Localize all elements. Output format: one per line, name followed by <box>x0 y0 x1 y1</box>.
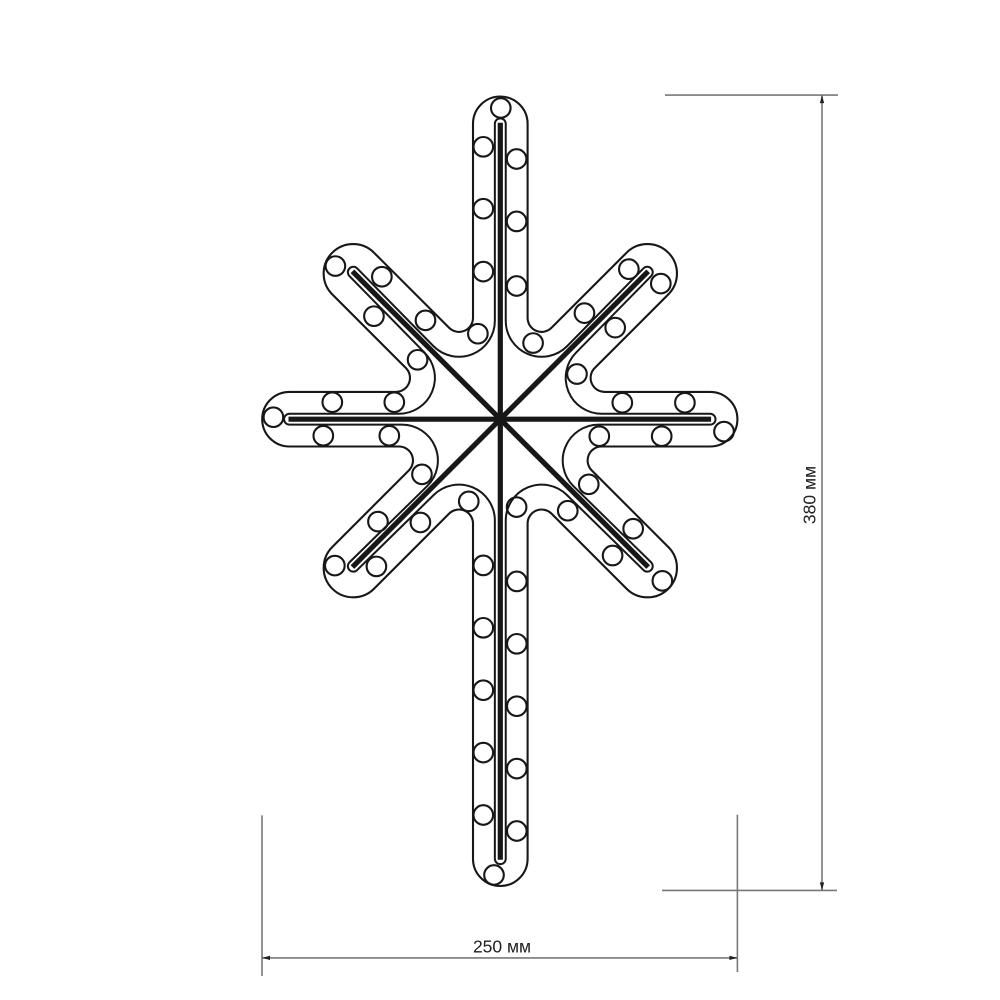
svg-text:250 мм: 250 мм <box>473 937 531 957</box>
svg-text:380 мм: 380 мм <box>800 466 820 524</box>
